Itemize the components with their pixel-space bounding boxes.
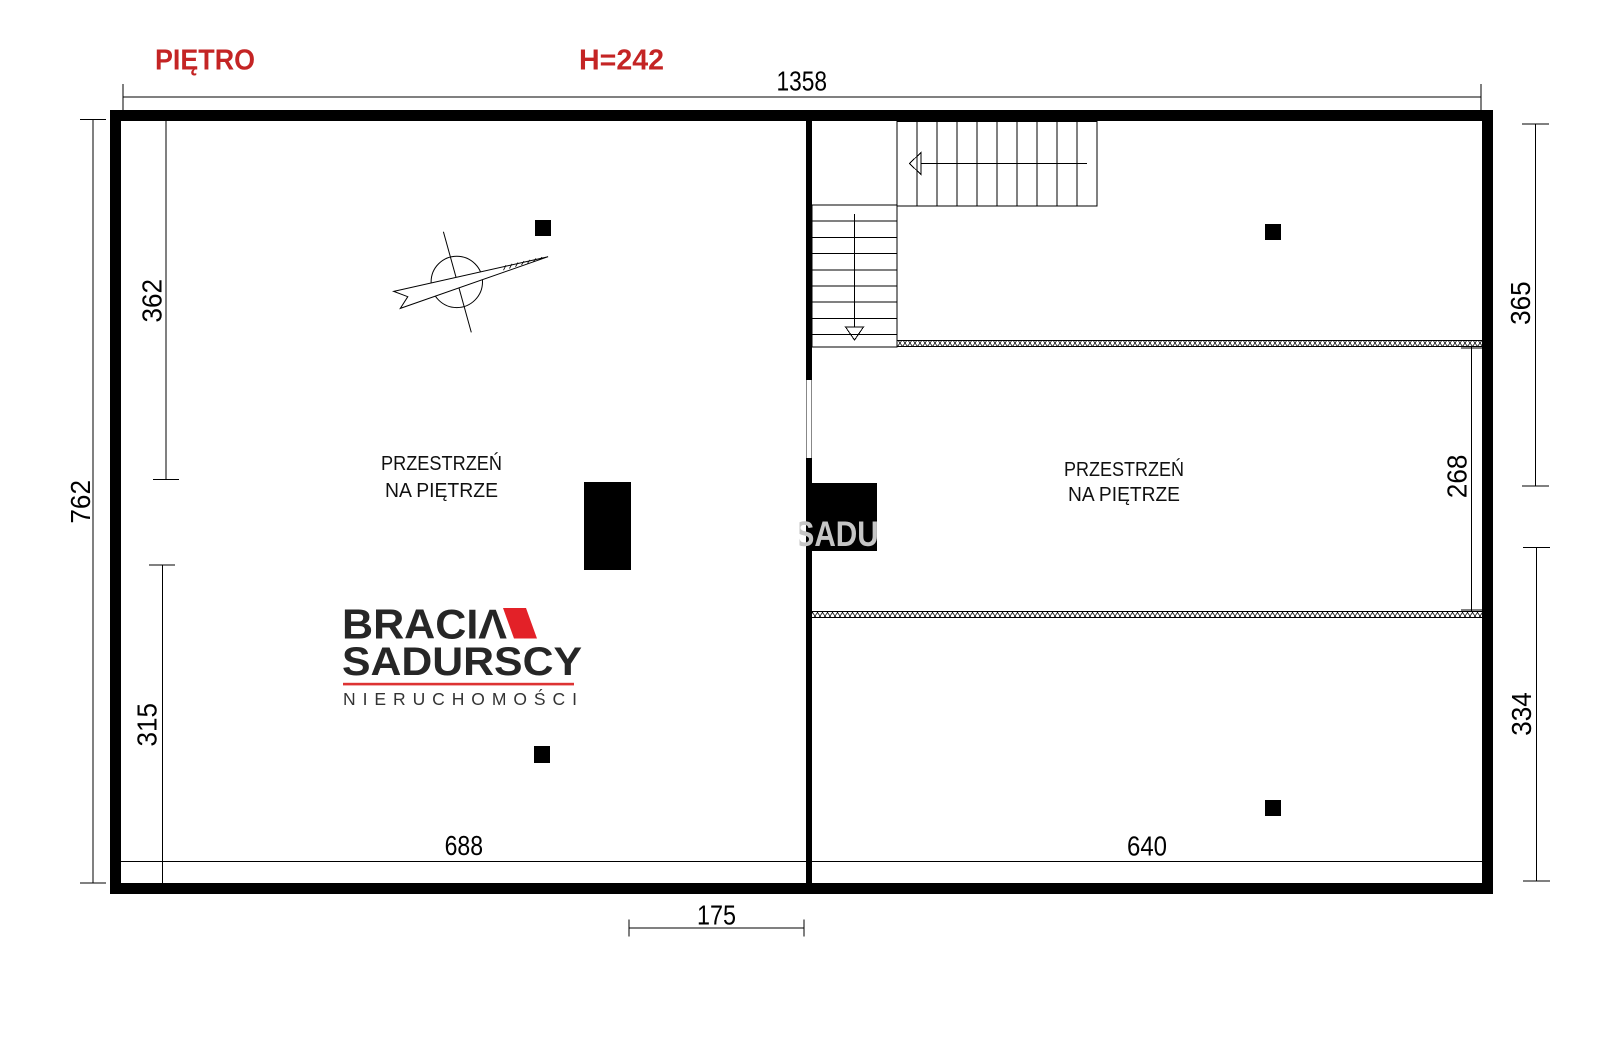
svg-text:SADURSCY: SADURSCY (342, 640, 582, 684)
svg-text:762: 762 (65, 480, 96, 524)
svg-text:NA PIĘTRZE: NA PIĘTRZE (1068, 484, 1180, 506)
svg-text:640: 640 (1127, 831, 1167, 862)
svg-text:1358: 1358 (777, 66, 828, 97)
svg-text:175: 175 (697, 900, 736, 931)
svg-text:SADU: SADU (795, 515, 879, 554)
svg-text:PIĘTRO: PIĘTRO (155, 45, 255, 77)
svg-text:362: 362 (137, 279, 168, 323)
svg-text:365: 365 (1505, 281, 1536, 325)
svg-text:PRZESTRZEŃ: PRZESTRZEŃ (1064, 458, 1184, 481)
svg-text:NIERUCHOMOŚCI: NIERUCHOMOŚCI (343, 688, 577, 709)
svg-text:315: 315 (132, 703, 163, 747)
svg-text:268: 268 (1442, 455, 1473, 499)
svg-text:688: 688 (445, 830, 483, 861)
svg-text:334: 334 (1506, 692, 1537, 736)
svg-text:PRZESTRZEŃ: PRZESTRZEŃ (381, 452, 502, 475)
svg-text:NA PIĘTRZE: NA PIĘTRZE (385, 480, 498, 502)
svg-text:H=242: H=242 (579, 45, 664, 77)
